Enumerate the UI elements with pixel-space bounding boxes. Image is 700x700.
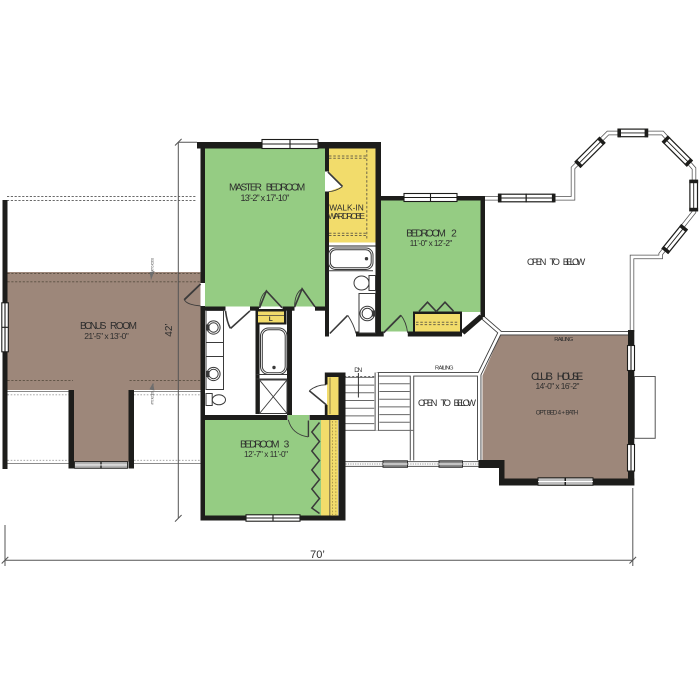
svg-text:70’: 70’	[310, 549, 325, 561]
svg-text:13’-2" x 17’-10": 13’-2" x 17’-10"	[241, 193, 290, 203]
svg-text:BONUS: BONUS	[80, 321, 107, 332]
svg-text:BEDROOM: BEDROOM	[240, 439, 280, 450]
svg-text:OPEN: OPEN	[418, 397, 438, 408]
svg-text:TO: TO	[440, 397, 451, 408]
svg-text:OPT. BED 4 + BATH: OPT. BED 4 + BATH	[536, 410, 579, 417]
svg-text:BEDROOM: BEDROOM	[406, 229, 446, 240]
svg-text:DN: DN	[354, 367, 362, 374]
svg-text:2: 2	[451, 229, 457, 240]
svg-text:RAILING: RAILING	[554, 337, 573, 343]
svg-text:21’-5" x 13’-0": 21’-5" x 13’-0"	[84, 331, 129, 341]
svg-text:BEDROOM: BEDROOM	[266, 182, 306, 193]
svg-text:12’-7" x 11’-0": 12’-7" x 11’-0"	[244, 450, 288, 459]
svg-text:3: 3	[284, 439, 290, 450]
svg-text:TO: TO	[549, 256, 560, 267]
svg-text:RAILING: RAILING	[435, 366, 454, 372]
svg-text:BELOW: BELOW	[563, 256, 586, 267]
svg-text:BELOW: BELOW	[453, 397, 476, 408]
svg-text:OPEN: OPEN	[527, 256, 547, 267]
svg-text:ROOM: ROOM	[110, 321, 137, 332]
svg-text:14’-0" x 16’-2": 14’-0" x 16’-2"	[536, 381, 580, 391]
svg-text:L: L	[269, 316, 273, 323]
svg-text:42’: 42’	[164, 323, 175, 336]
svg-text:WARDROBE: WARDROBE	[328, 211, 365, 221]
svg-text:ATTIC ACCESS: ATTIC ACCESS	[151, 258, 155, 271]
svg-text:11’-0" x 12’-2": 11’-0" x 12’-2"	[410, 239, 453, 248]
svg-text:ATTIC ACCESS: ATTIC ACCESS	[151, 391, 155, 404]
svg-text:MASTER: MASTER	[229, 182, 262, 193]
